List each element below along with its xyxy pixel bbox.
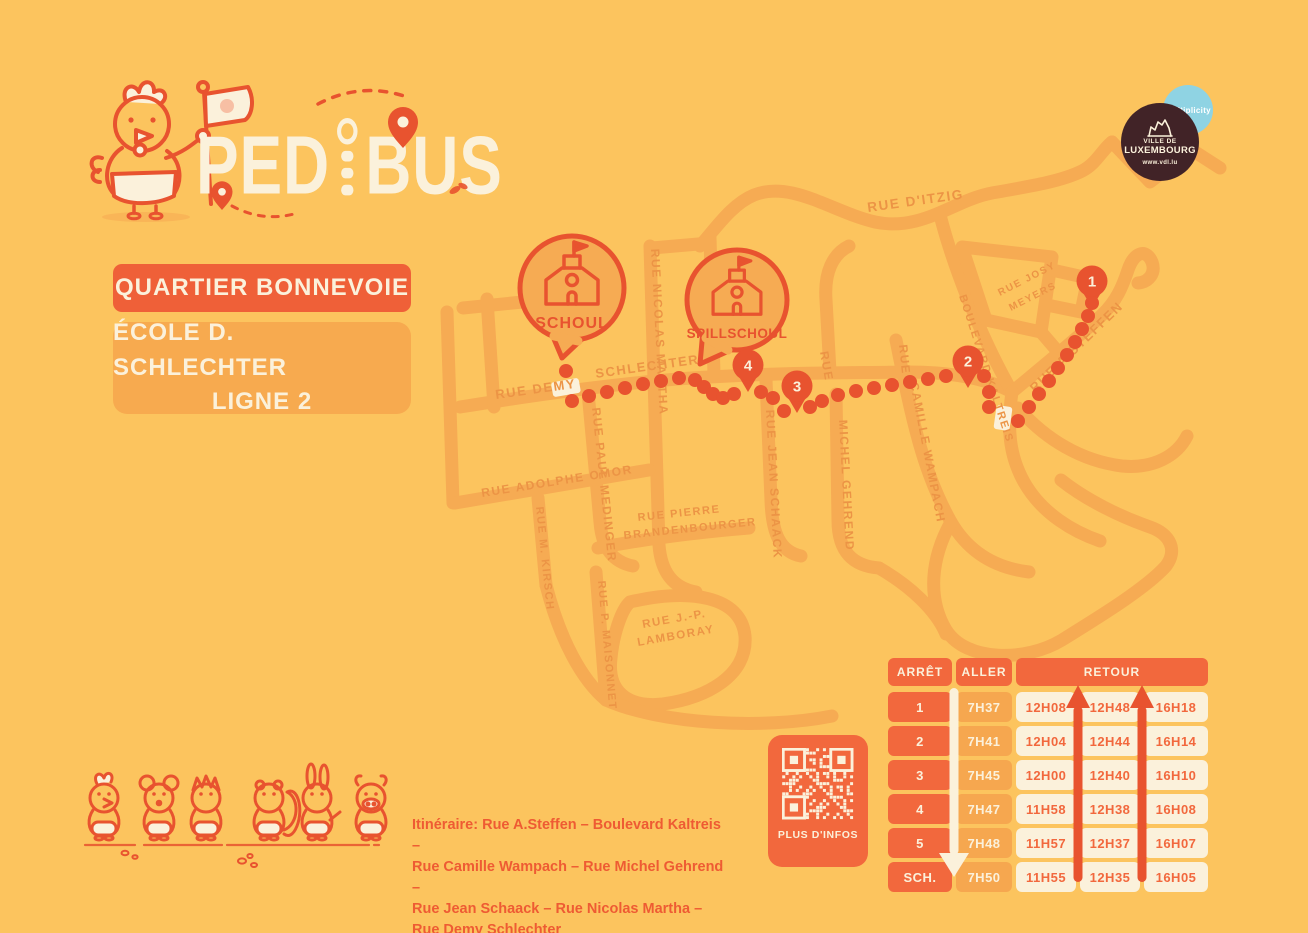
route-dot (672, 371, 686, 385)
tt-retour-cell: 12H35 (1080, 862, 1140, 892)
route-dot (939, 369, 953, 383)
itinerary-text: Itinéraire: Rue A.Steffen – Boulevard Ka… (412, 815, 732, 933)
wordmark-bus: BUS (365, 133, 503, 197)
castle-icon (1145, 119, 1175, 137)
school-line-badge: ÉCOLE D. SCHLECHTER LIGNE 2 (113, 322, 411, 414)
route-dot (803, 400, 817, 414)
quartier-badge-label: QUARTIER BONNEVOIE (115, 274, 409, 302)
animal-mascot (302, 764, 340, 840)
route-dot (982, 400, 996, 414)
tt-retour-cell: 12H40 (1080, 760, 1140, 790)
ville-de-luxembourg-logo: VILLE DE LUXEMBOURG www.vdl.lu (1121, 103, 1199, 181)
route-dot (903, 375, 917, 389)
tt-retour-cell: 11H57 (1016, 828, 1076, 858)
tt-aller-cell: 7H50 (956, 862, 1012, 892)
route-dot (654, 374, 668, 388)
tt-retour-cell: 11H58 (1016, 794, 1076, 824)
route-dot (849, 384, 863, 398)
tt-retour-cell: 12H44 (1080, 726, 1140, 756)
tt-retour-cell: 12H38 (1080, 794, 1140, 824)
route-dot (885, 378, 899, 392)
tt-retour-cell: 16H14 (1144, 726, 1208, 756)
tt-stop-cell: 1 (888, 692, 952, 722)
tt-header-retour: RETOUR (1016, 658, 1208, 686)
school-marker-spillschoul: SPILLSCHOUL (687, 250, 788, 364)
tt-retour-cell: 16H18 (1144, 692, 1208, 722)
tt-retour-cell: 12H00 (1016, 760, 1076, 790)
route-dot (618, 381, 632, 395)
tt-stop-cell: 4 (888, 794, 952, 824)
route-dot (867, 381, 881, 395)
tt-aller-cell: 7H48 (956, 828, 1012, 858)
street-network (447, 142, 1220, 723)
stop-number: 4 (744, 358, 753, 375)
route-dot (636, 377, 650, 391)
route-dot (559, 364, 573, 378)
animal-mascot (89, 773, 119, 840)
animal-mascots-illustration (82, 762, 392, 880)
tt-retour-cell: 12H04 (1016, 726, 1076, 756)
tt-stop-cell: SCH. (888, 862, 952, 892)
stop-number: 3 (793, 379, 801, 396)
animal-mascot (356, 776, 386, 840)
stop-number: 2 (964, 354, 972, 371)
pedibus-wordmark: PED BUS (196, 118, 570, 214)
wordmark-ped: PED (196, 133, 330, 197)
route-dot (727, 387, 741, 401)
pedibus-poster-page: RUE DEMYSCHLECHTERRUE PAUL MEDINGERRUE N… (0, 0, 1308, 933)
route-dot (582, 389, 596, 403)
tt-retour-cell: 12H08 (1016, 692, 1076, 722)
route-dot (1032, 387, 1046, 401)
tt-aller-cell: 7H37 (956, 692, 1012, 722)
route-dot (1075, 322, 1089, 336)
route-dot (777, 404, 791, 418)
tt-retour-cell: 16H07 (1144, 828, 1208, 858)
street-label: CAMILLE WAMPACH (907, 381, 948, 524)
school-marker-schoul: SCHOUL (520, 236, 624, 358)
tt-retour-cell: 11H55 (1016, 862, 1076, 892)
route-dot (815, 394, 829, 408)
tt-aller-cell: 7H45 (956, 760, 1012, 790)
route-dot (1022, 400, 1036, 414)
route-dot (1068, 335, 1082, 349)
tt-retour-cell: 16H10 (1144, 760, 1208, 790)
tt-stop-cell: 5 (888, 828, 952, 858)
tt-retour-cell: 16H08 (1144, 794, 1208, 824)
pebbles (122, 851, 258, 867)
tt-header-aller: ALLER (956, 658, 1012, 686)
qr-code (782, 748, 854, 820)
stop-number: 1 (1088, 274, 1096, 291)
tt-retour-cell: 16H05 (1144, 862, 1208, 892)
tt-header-arret: ARRÊT (888, 658, 952, 686)
tt-stop-cell: 2 (888, 726, 952, 756)
route-dot (982, 385, 996, 399)
animal-mascot (191, 776, 221, 840)
route-dot (754, 385, 768, 399)
tt-retour-cell: 12H37 (1080, 828, 1140, 858)
school-label: SCHOUL (535, 315, 609, 332)
route-dot (921, 372, 935, 386)
route-dot (766, 391, 780, 405)
vdl-text: VILLE DE (1143, 138, 1176, 145)
route-dot (1060, 348, 1074, 362)
timetable: ARRÊTALLERRETOUR17H3712H0812H4816H1827H4… (888, 658, 1208, 890)
tt-aller-cell: 7H47 (956, 794, 1012, 824)
tt-aller-cell: 7H41 (956, 726, 1012, 756)
route-dot (600, 385, 614, 399)
quartier-badge: QUARTIER BONNEVOIE (113, 264, 411, 312)
tt-retour-cell: 12H48 (1080, 692, 1140, 722)
wordmark-dotted-i (337, 118, 358, 195)
vdl-url: www.vdl.lu (1142, 160, 1177, 166)
school-name-label: ÉCOLE D. SCHLECHTER (113, 316, 411, 386)
qr-card-label: PLUS D'INFOS (778, 829, 858, 841)
school-label: SPILLSCHOUL (687, 326, 788, 341)
route-dot (831, 388, 845, 402)
route-dot (565, 394, 579, 408)
line-number-label: LIGNE 2 (212, 385, 312, 420)
route-dot (1042, 374, 1056, 388)
street-label: RUE M. KIRSCH (533, 506, 556, 611)
animal-mascot (140, 776, 178, 840)
route-dot (1081, 309, 1095, 323)
vdl-text: LUXEMBOURG (1124, 145, 1196, 156)
animal-mascot (254, 781, 300, 840)
qr-info-card: PLUS D'INFOS (768, 735, 868, 867)
route-dot (1011, 414, 1025, 428)
route-dot (1051, 361, 1065, 375)
tt-stop-cell: 3 (888, 760, 952, 790)
